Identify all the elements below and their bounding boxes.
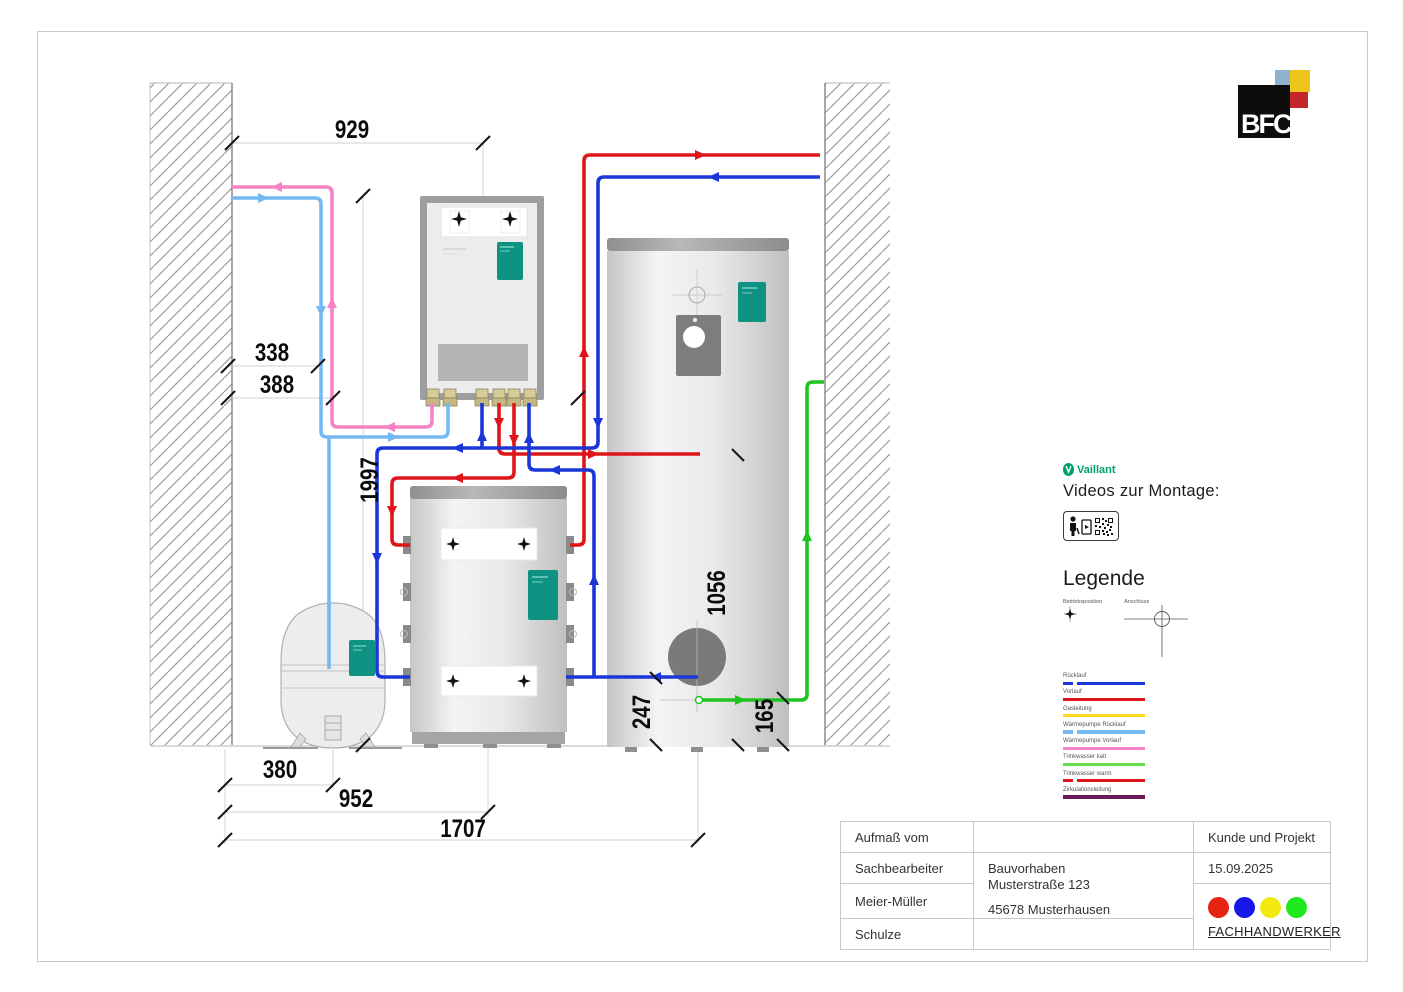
sachbearbeiter-label: Sachbearbeiter	[841, 853, 974, 884]
legend-swatch-wp-ruecklauf	[1063, 730, 1145, 733]
legend-item: Wärmepumpe Rücklauf	[1063, 722, 1353, 734]
vaillant-crest-icon	[1063, 463, 1074, 476]
project-address: Bauvorhaben Musterstraße 123 45678 Muste…	[974, 853, 1194, 919]
bfc-black-square: BFC	[1238, 85, 1290, 138]
legend-items: Rücklauf Vorlauf Gasleitung Wärmepumpe R…	[1063, 673, 1353, 799]
installer-phone-qr-icon	[1066, 514, 1116, 538]
legend-item: Vorlauf	[1063, 689, 1353, 701]
person2-cell: Schulze	[841, 919, 974, 950]
videos-heading: Videos zur Montage:	[1063, 482, 1353, 501]
fachhandwerker-cell: FACHHANDWERKER	[1194, 884, 1331, 950]
legend-item: Trinkwasser warm	[1063, 771, 1353, 783]
bfc-blue-square	[1275, 70, 1290, 85]
fachhandwerker-label: FACHHANDWERKER	[1208, 924, 1330, 939]
legend-item: Wärmepumpe Vorlauf	[1063, 738, 1353, 750]
date-cell: 15.09.2025	[1194, 853, 1331, 884]
legend-item: Trinkwasser kalt	[1063, 754, 1353, 766]
bfc-logo: BFC	[1237, 70, 1312, 142]
legend-item: Gasleitung	[1063, 706, 1353, 718]
legend-swatch-tw-kalt	[1063, 763, 1145, 766]
kunde-label: Kunde und Projekt	[1194, 822, 1331, 853]
empty-cell	[974, 822, 1194, 853]
legend-swatch-wp-vorlauf	[1063, 747, 1145, 750]
montage-video-qr	[1063, 511, 1119, 541]
drawing-sheet: 929 338 388 1997 1056 247 165 380 952 17…	[0, 0, 1403, 992]
vaillant-logo-text: Vaillant	[1077, 464, 1116, 476]
legend-item: Zirkulationsleitung	[1063, 787, 1353, 799]
bfc-red-square	[1290, 92, 1308, 108]
red-dot	[1208, 897, 1229, 918]
bfc-logo-text: BFC	[1241, 112, 1291, 136]
empty-cell	[974, 919, 1194, 950]
color-dots	[1208, 897, 1330, 918]
blue-dot	[1234, 897, 1255, 918]
legend-title: Legende	[1063, 567, 1353, 591]
vaillant-logo: Vaillant	[1063, 463, 1353, 476]
person1-cell: Meier-Müller	[841, 884, 974, 919]
anschluss-symbol: Anschluss	[1124, 599, 1188, 659]
legend-symbols: Betriebsposition Anschluss	[1063, 599, 1353, 659]
aufmass-label: Aufmaß vom	[841, 822, 974, 853]
betriebsposition-symbol: Betriebsposition	[1063, 599, 1102, 625]
title-block: Aufmaß vom Kunde und Projekt Sachbearbei…	[840, 821, 1331, 950]
legend-swatch-vorlauf	[1063, 698, 1145, 701]
legend-swatch-gasleitung	[1063, 714, 1145, 717]
green-dot	[1286, 897, 1307, 918]
bfc-yellow-square	[1290, 70, 1310, 92]
legend-swatch-tw-warm	[1063, 779, 1145, 782]
legend-item: Rücklauf	[1063, 673, 1353, 685]
info-panel: Vaillant Videos zur Montage:	[1063, 463, 1353, 803]
legend-swatch-zirkulation	[1063, 795, 1145, 798]
legend-swatch-ruecklauf	[1063, 682, 1145, 685]
yellow-dot	[1260, 897, 1281, 918]
